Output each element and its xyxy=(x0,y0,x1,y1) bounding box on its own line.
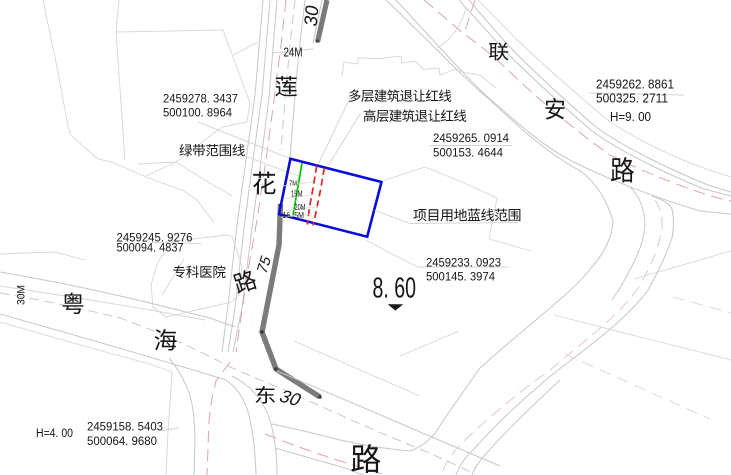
svg-text:16. 5M: 16. 5M xyxy=(283,211,305,220)
svg-text:7M: 7M xyxy=(289,179,297,188)
svg-text:30: 30 xyxy=(276,386,306,410)
svg-text:500100. 8964: 500100. 8964 xyxy=(163,105,232,119)
svg-text:2459233. 0923: 2459233. 0923 xyxy=(426,256,501,270)
svg-text:500325. 2711: 500325. 2711 xyxy=(596,90,668,105)
svg-text:30M: 30M xyxy=(16,285,28,305)
svg-text:30: 30 xyxy=(300,3,322,28)
svg-text:2459262. 8861: 2459262. 8861 xyxy=(596,76,674,91)
svg-text:8. 60: 8. 60 xyxy=(373,273,417,305)
svg-text:500145. 3974: 500145. 3974 xyxy=(426,270,495,284)
svg-text:15M: 15M xyxy=(291,190,303,199)
svg-text:2459265. 0914: 2459265. 0914 xyxy=(433,131,509,145)
svg-text:2459278. 3437: 2459278. 3437 xyxy=(163,91,238,105)
svg-text:H=4. 00: H=4. 00 xyxy=(36,426,73,440)
svg-text:500064. 9680: 500064. 9680 xyxy=(87,434,157,448)
svg-text:500094. 4837: 500094. 4837 xyxy=(117,242,184,255)
svg-text:2459158. 5403: 2459158. 5403 xyxy=(87,419,163,433)
svg-text:500153. 4644: 500153. 4644 xyxy=(433,145,503,159)
svg-text:24M: 24M xyxy=(284,45,303,60)
svg-text:H=9. 00: H=9. 00 xyxy=(610,109,651,124)
